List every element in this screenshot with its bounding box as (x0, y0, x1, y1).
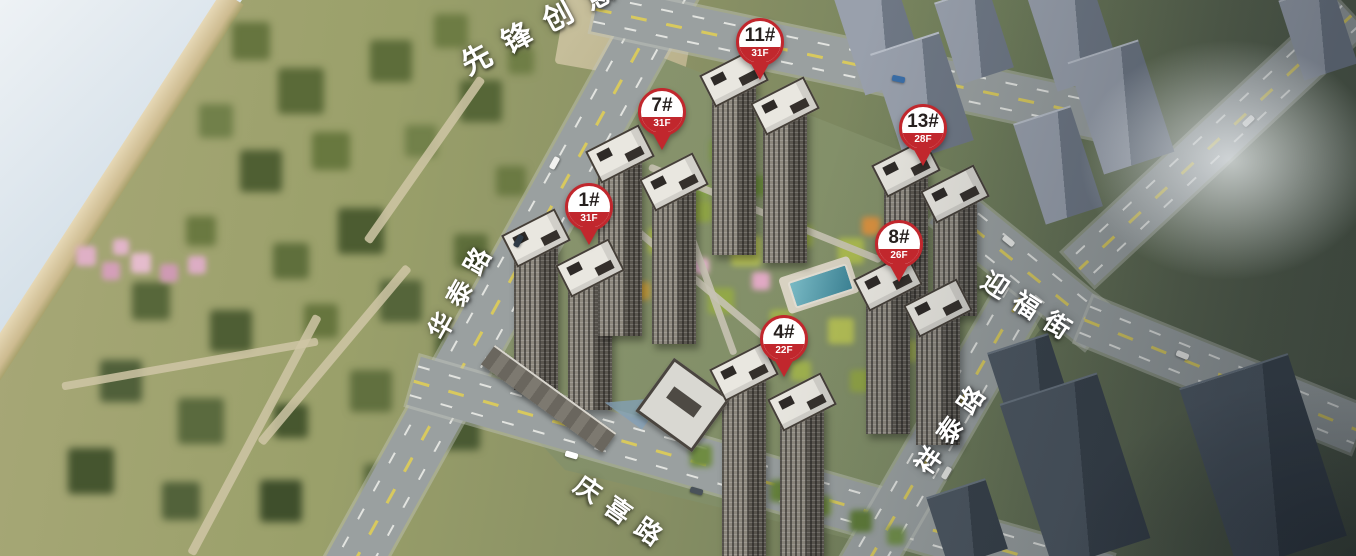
pin-building-11[interactable]: 11# 31F (736, 18, 784, 80)
pin-building-number: 4# (773, 323, 794, 342)
pin-floor-count: 31F (739, 47, 781, 63)
pin-tail (889, 264, 909, 282)
pin-tail (652, 132, 672, 150)
podium-roof-garden (0, 0, 2, 2)
pin-circle: 1# 31F (565, 183, 613, 231)
pin-floor-count: 31F (568, 212, 610, 228)
pin-building-number: 13# (907, 112, 939, 131)
pin-tail (774, 359, 794, 377)
pin-building-number: 11# (745, 26, 776, 45)
pin-building-number: 7# (651, 96, 672, 115)
pin-circle: 11# 31F (736, 18, 784, 66)
pin-building-4[interactable]: 4# 22F (760, 315, 808, 377)
pin-circle: 13# 28F (899, 104, 947, 152)
pin-circle: 8# 26F (875, 220, 923, 268)
pin-floor-count: 22F (763, 344, 805, 360)
pin-tail (913, 148, 933, 166)
pin-floor-count: 28F (902, 133, 944, 149)
park-path (257, 264, 412, 446)
massing-building (1179, 353, 1347, 556)
pin-circle: 4# 22F (760, 315, 808, 363)
tower-11a-facade (712, 80, 756, 255)
pin-building-1[interactable]: 1# 31F (565, 183, 613, 245)
pin-tail (579, 227, 599, 245)
pin-floor-count: 26F (878, 249, 920, 265)
aerial-site-map: 先锋创意 华泰路 庆喜路 祥泰路 迎福街 1# 31F 7# 31F 11# 3… (0, 0, 1356, 556)
park-path (363, 76, 485, 245)
pin-building-8[interactable]: 8# 26F (875, 220, 923, 282)
pin-circle: 7# 31F (638, 88, 686, 136)
pin-building-13[interactable]: 13# 28F (899, 104, 947, 166)
pin-building-7[interactable]: 7# 31F (638, 88, 686, 150)
pin-tail (750, 62, 770, 80)
pin-floor-count: 31F (641, 117, 683, 133)
pin-building-number: 1# (578, 191, 599, 210)
pin-building-number: 8# (888, 228, 909, 247)
